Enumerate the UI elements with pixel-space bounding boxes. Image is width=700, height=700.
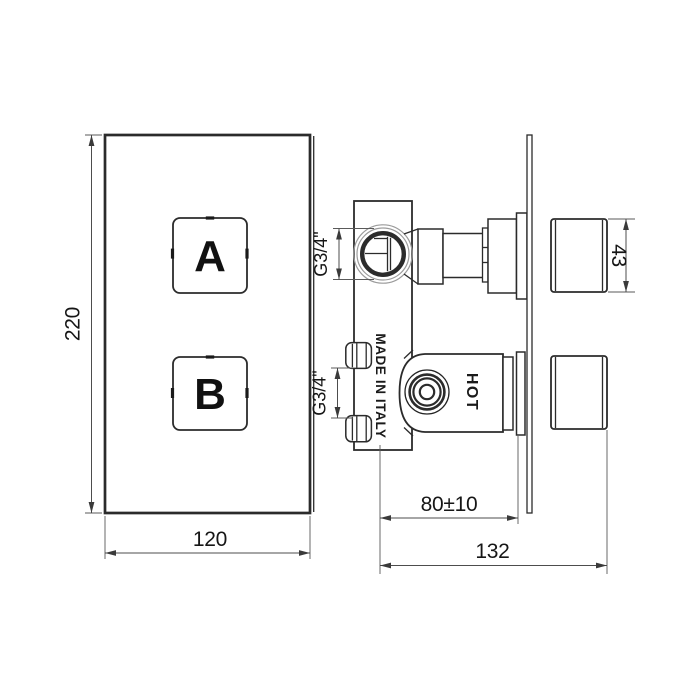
technical-drawing: A B 220 120 <box>0 0 700 700</box>
spindle-washer <box>483 228 489 282</box>
drawing-page: A B 220 120 <box>0 0 700 700</box>
button-a-notch-right <box>245 249 248 259</box>
dim-label-bottom-thread: G3/4" <box>310 370 330 415</box>
inlet-fitting-bottom <box>346 416 372 442</box>
spindle-flange <box>517 352 526 435</box>
wall-plate-edge <box>527 135 532 513</box>
button-b-notch-top <box>206 355 214 358</box>
button-b-notch-right <box>245 388 248 398</box>
top-spindle <box>404 213 527 299</box>
button-b: B <box>171 355 249 430</box>
button-b-label: B <box>194 370 226 419</box>
side-view: HOT MADE IN ITALY <box>346 135 607 513</box>
dim-label-height: 220 <box>62 307 85 341</box>
dimension-handle: 43 <box>607 219 635 292</box>
button-a-label: A <box>194 232 226 281</box>
hot-marking: HOT <box>463 373 480 411</box>
dim-label-handle: 43 <box>607 244 630 267</box>
button-a-notch-top <box>206 216 214 219</box>
fitting-outline <box>346 343 372 369</box>
spindle-sleeve <box>503 357 513 430</box>
button-b-notch-left <box>171 388 174 398</box>
spindle-sleeve <box>488 219 517 293</box>
handle-top <box>551 219 607 292</box>
spindle-step <box>418 229 443 284</box>
mounting-plate-front <box>105 135 310 513</box>
diverter-port <box>354 225 412 283</box>
handle-outline <box>551 356 607 429</box>
dim-label-top-thread: G3/4" <box>311 231 331 276</box>
spindle-stem <box>443 234 483 278</box>
cartridge-circles <box>405 370 449 414</box>
dimension-bottom-port: G3/4" <box>310 368 354 418</box>
spindle-flange <box>517 213 528 299</box>
cartridge-ring-outer <box>405 370 449 414</box>
dim-label-overall-depth: 132 <box>475 540 509 563</box>
handle-bottom <box>551 356 607 429</box>
inlet-fitting-top <box>346 343 372 369</box>
dimension-plate-width: 120 <box>105 516 310 559</box>
button-a: A <box>171 216 249 293</box>
bottom-spindle <box>503 352 525 435</box>
button-a-notch-left <box>171 249 174 259</box>
dimension-overall-depth: 132 <box>380 430 607 574</box>
made-in-italy-marking: MADE IN ITALY <box>373 333 388 438</box>
fitting-outline <box>346 416 372 442</box>
handle-outline <box>551 219 607 292</box>
dim-label-mount-depth: 80±10 <box>421 493 478 516</box>
front-view: A B <box>105 135 314 513</box>
dimension-plate-height: 220 <box>62 135 103 513</box>
dim-label-width: 120 <box>193 528 227 551</box>
